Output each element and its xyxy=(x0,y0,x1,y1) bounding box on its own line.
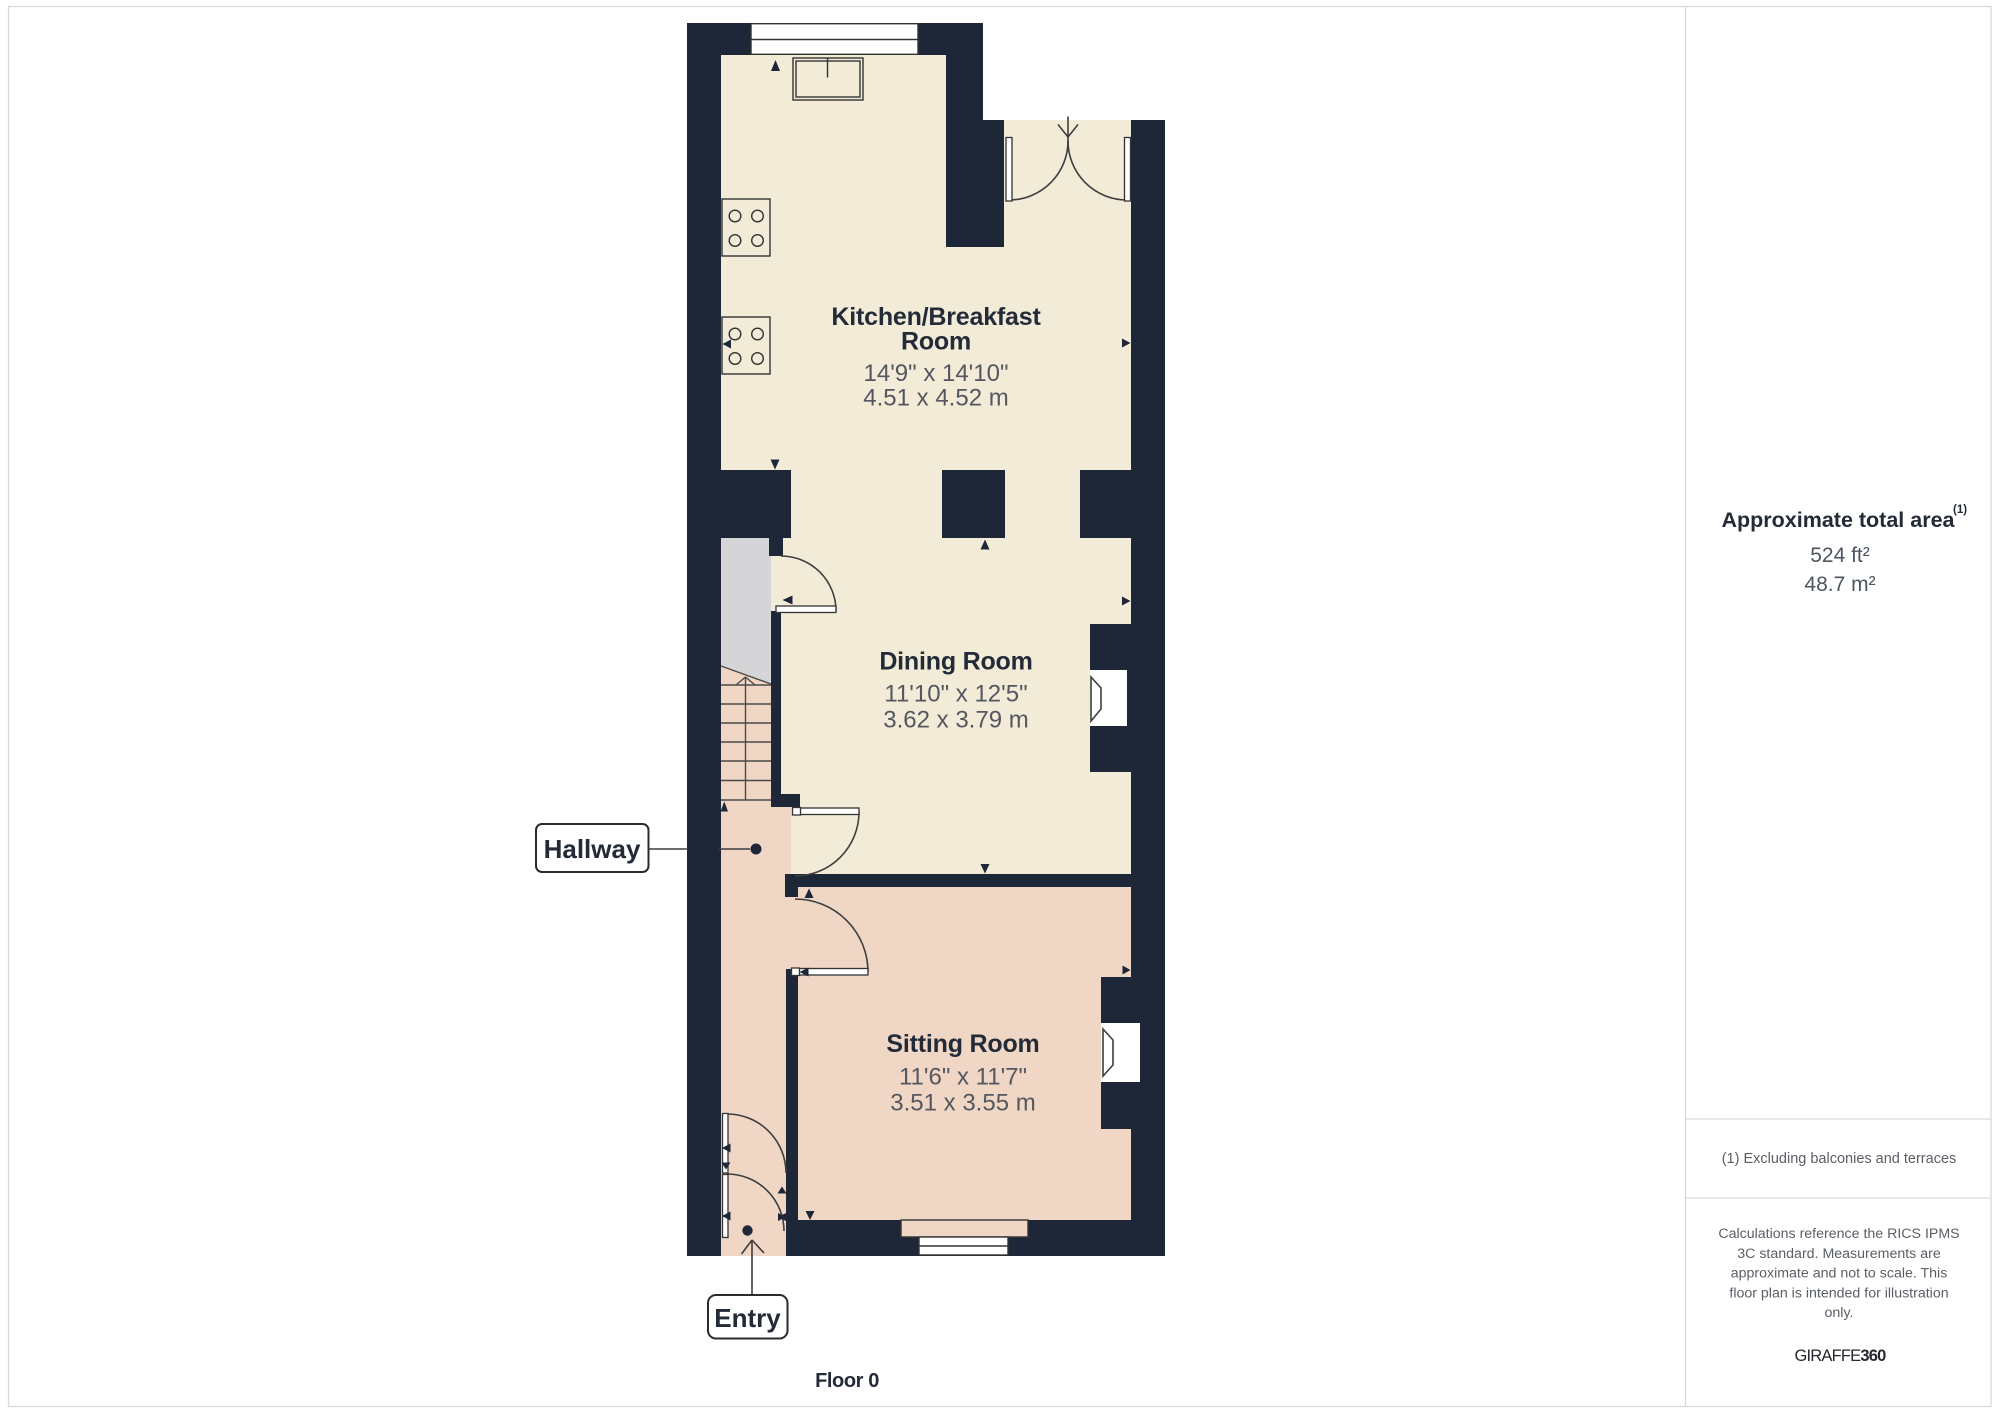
svg-text:approximate and not to scale.: approximate and not to scale. This xyxy=(1731,1266,1948,1282)
svg-text:3.62 x 3.79 m: 3.62 x 3.79 m xyxy=(883,707,1028,734)
svg-text:Room: Room xyxy=(901,328,971,356)
svg-text:Calculations reference the RIC: Calculations reference the RICS IPMS xyxy=(1718,1226,1959,1242)
svg-text:(1) Excluding balconies and te: (1) Excluding balconies and terraces xyxy=(1722,1151,1957,1167)
svg-text:Floor 0: Floor 0 xyxy=(815,1370,879,1392)
svg-text:Dining Room: Dining Room xyxy=(879,648,1032,676)
svg-text:48.7 m²: 48.7 m² xyxy=(1804,573,1875,596)
svg-text:14'9" x 14'10": 14'9" x 14'10" xyxy=(864,360,1009,387)
svg-text:Hallway: Hallway xyxy=(544,834,641,864)
svg-text:Approximate total area: Approximate total area xyxy=(1722,508,1956,532)
svg-text:524 ft²: 524 ft² xyxy=(1810,544,1870,567)
svg-text:(1): (1) xyxy=(1953,504,1967,516)
svg-text:Sitting Room: Sitting Room xyxy=(886,1030,1039,1058)
svg-text:4.51 x 4.52 m: 4.51 x 4.52 m xyxy=(863,385,1008,412)
svg-text:3C standard. Measurements are: 3C standard. Measurements are xyxy=(1737,1246,1941,1262)
svg-text:only.: only. xyxy=(1825,1305,1854,1321)
svg-text:11'6" x 11'7": 11'6" x 11'7" xyxy=(899,1064,1027,1091)
svg-text:3.51 x 3.55 m: 3.51 x 3.55 m xyxy=(890,1090,1035,1117)
svg-text:11'10" x 12'5": 11'10" x 12'5" xyxy=(884,681,1027,708)
svg-text:floor plan is intended for ill: floor plan is intended for illustration xyxy=(1729,1285,1948,1301)
svg-text:Entry: Entry xyxy=(714,1303,781,1333)
svg-text:GIRAFFE360: GIRAFFE360 xyxy=(1794,1347,1886,1365)
